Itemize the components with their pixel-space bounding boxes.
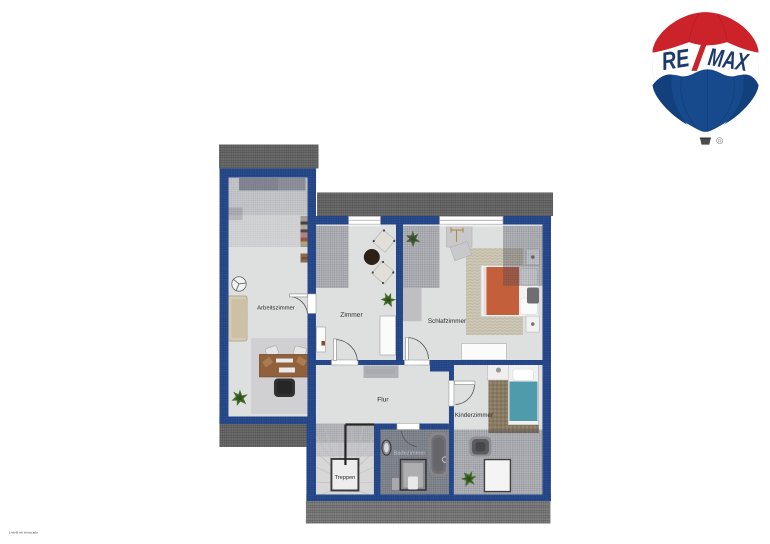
svg-text:Treppen: Treppen — [335, 475, 356, 481]
svg-text:Arbeitszimmer: Arbeitszimmer — [257, 305, 295, 311]
svg-text:Kinderzimmer: Kinderzimmer — [455, 412, 493, 419]
svg-text:Erstellt mit Immocado: Erstellt mit Immocado — [9, 530, 38, 534]
svg-text:R: R — [718, 139, 722, 145]
svg-text:Flur: Flur — [377, 396, 389, 403]
svg-text:Badezimmer: Badezimmer — [393, 451, 425, 457]
svg-text:RE: RE — [660, 44, 693, 76]
svg-text:Schlafzimmer: Schlafzimmer — [428, 318, 466, 325]
svg-text:Zimmer: Zimmer — [340, 312, 363, 319]
